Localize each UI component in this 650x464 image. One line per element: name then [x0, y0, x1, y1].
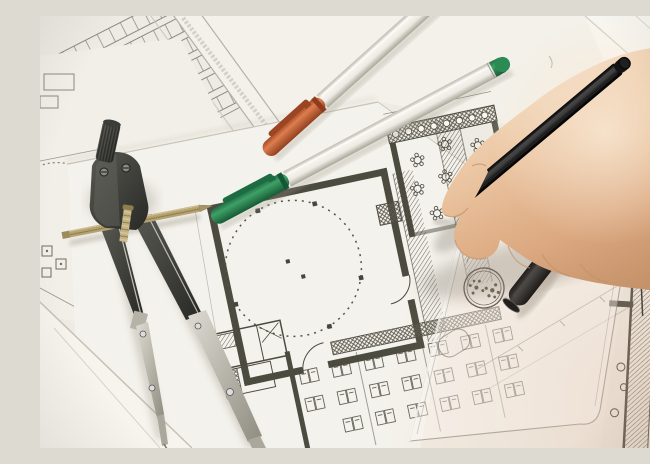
- vignette: [40, 16, 650, 448]
- photo-architect-desk: [40, 16, 650, 448]
